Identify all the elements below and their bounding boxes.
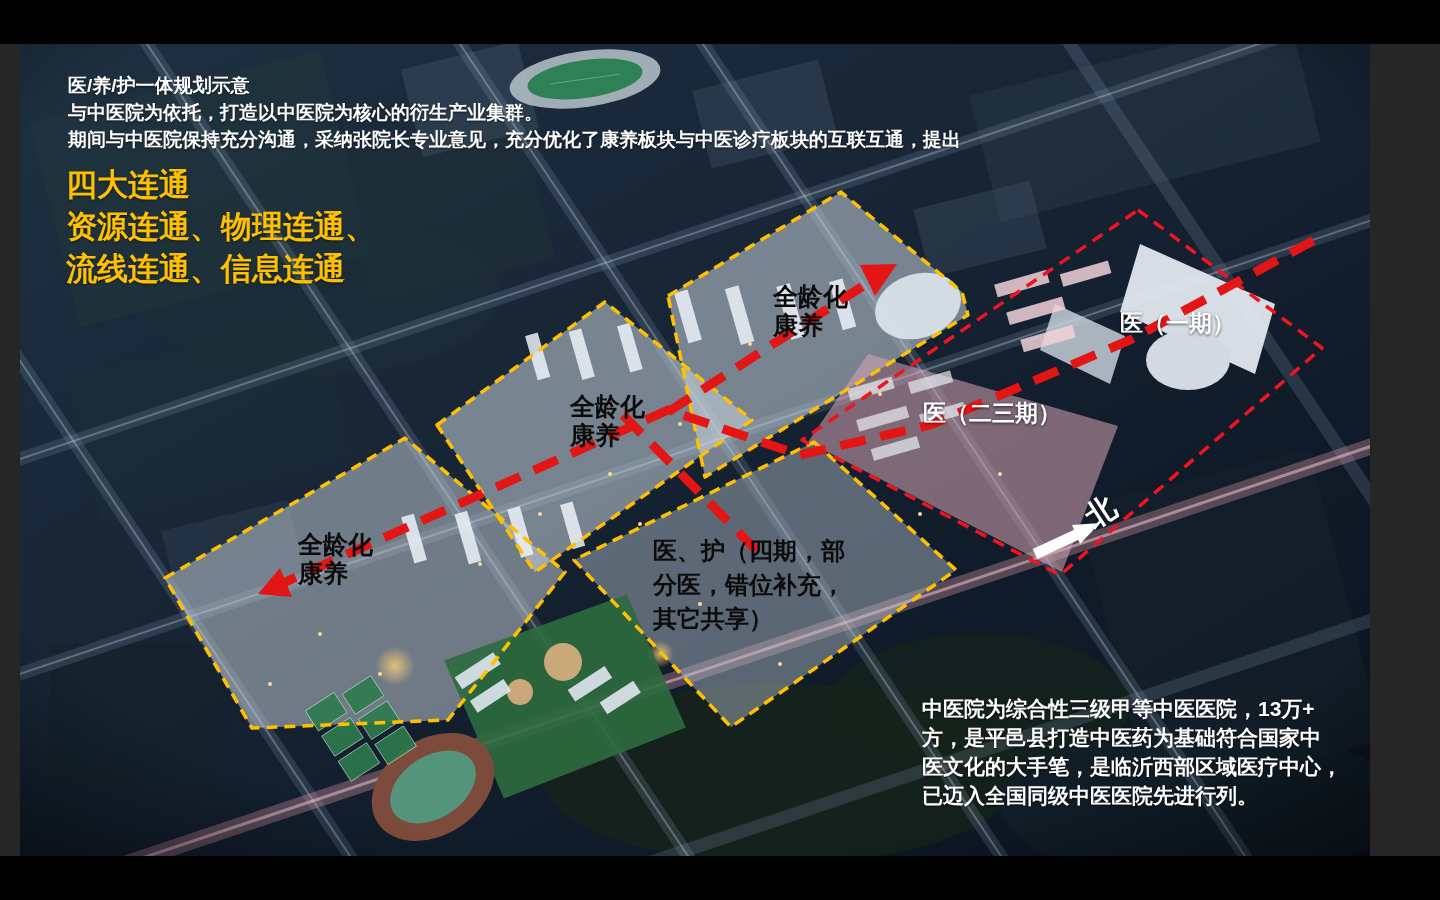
presentation-slide: 医/养/护一体规划示意 与中医院为依托，打造以中医院为核心的衍生产业集群。 期间… <box>0 44 1440 856</box>
four-connections-line-1: 资源连通、物理连通、 <box>66 206 376 248</box>
label-wellness-left-line1: 全龄化 <box>298 530 373 559</box>
slide-footer: 中医院为综合性三级甲等中医医院，13万+ 方，是平邑县打造中医药为基础符合国家中… <box>922 694 1342 810</box>
label-wellness-top-line2: 康养 <box>773 311 848 340</box>
label-hospital-phase4-line3: 其它共享） <box>653 602 845 636</box>
label-wellness-top-line1: 全龄化 <box>773 282 848 311</box>
label-hospital-phase4-line2: 分医，错位补充， <box>653 568 845 602</box>
four-connections-title: 四大连通 <box>66 164 376 206</box>
footer-line-1: 中医院为综合性三级甲等中医医院，13万+ <box>922 694 1342 723</box>
label-wellness-mid: 全龄化 康养 <box>570 392 645 450</box>
label-wellness-mid-line2: 康养 <box>570 421 645 450</box>
header-line-3: 期间与中医院保持充分沟通，采纳张院长专业意见，充分优化了康养板块与中医诊疗板块的… <box>68 126 961 153</box>
label-wellness-mid-line1: 全龄化 <box>570 392 645 421</box>
label-wellness-left-line2: 康养 <box>298 559 373 588</box>
slide-header: 医/养/护一体规划示意 与中医院为依托，打造以中医院为核心的衍生产业集群。 期间… <box>68 72 961 153</box>
footer-line-4: 已迈入全国同级中医医院先进行列。 <box>922 781 1342 810</box>
header-line-2: 与中医院为依托，打造以中医院为核心的衍生产业集群。 <box>68 99 961 126</box>
four-connections-line-2: 流线连通、信息连通 <box>66 248 376 290</box>
header-line-1: 医/养/护一体规划示意 <box>68 72 961 99</box>
label-wellness-left: 全龄化 康养 <box>298 530 373 588</box>
screenshot-root: { "slide": { "header": { "line1": "医/养/护… <box>0 0 1440 900</box>
footer-line-2: 方，是平邑县打造中医药为基础符合国家中 <box>922 723 1342 752</box>
label-wellness-top: 全龄化 康养 <box>773 282 848 340</box>
four-connections-block: 四大连通 资源连通、物理连通、 流线连通、信息连通 <box>66 164 376 290</box>
label-hospital-phase4-line1: 医、护（四期，部 <box>653 534 845 568</box>
label-hospital-phase23: 医（二三期） <box>923 398 1061 429</box>
label-hospital-phase1: 医（一期） <box>1120 308 1235 339</box>
label-hospital-phase4: 医、护（四期，部 分医，错位补充， 其它共享） <box>653 534 845 636</box>
footer-line-3: 医文化的大手笔，是临沂西部区域医疗中心， <box>922 752 1342 781</box>
